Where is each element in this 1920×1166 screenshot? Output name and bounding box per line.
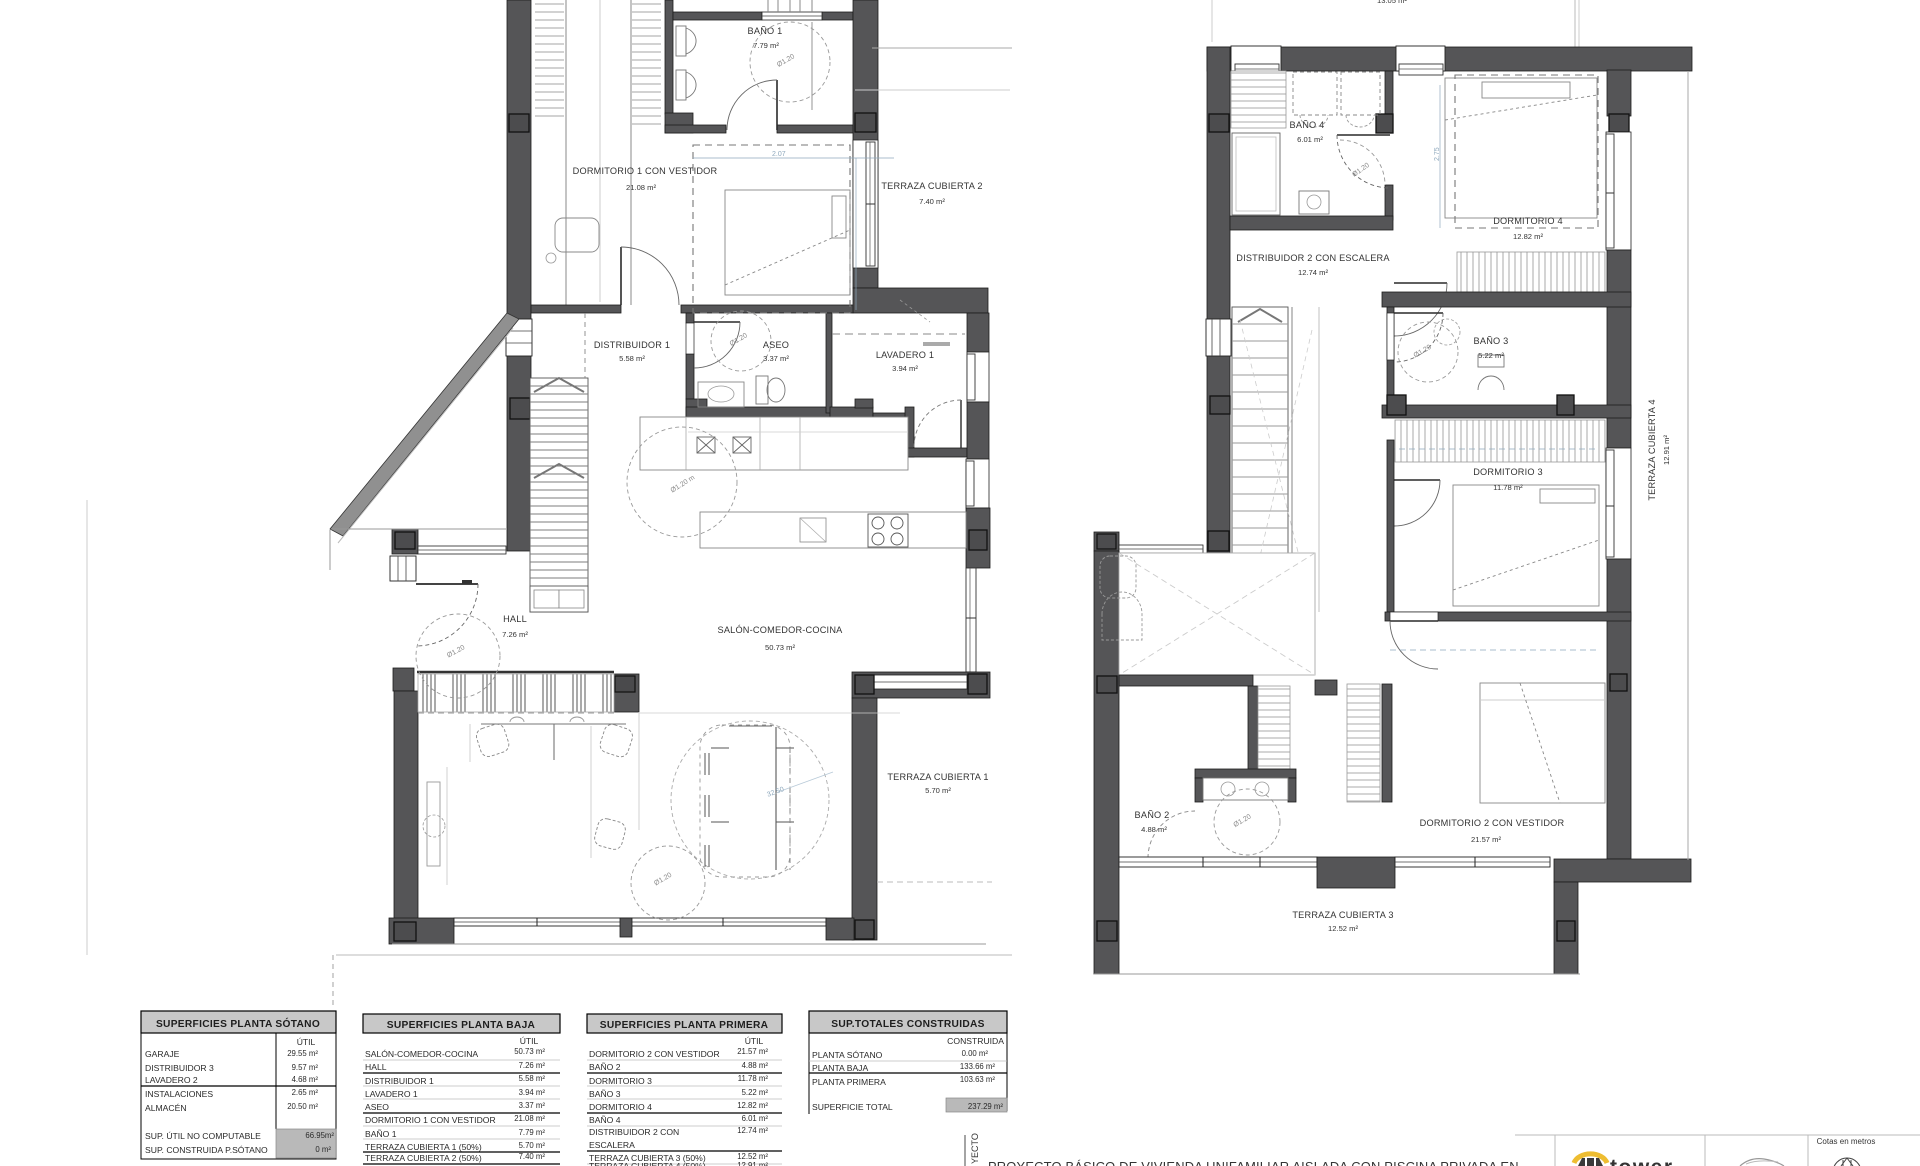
svg-text:TERRAZA CUBIERTA 3: TERRAZA CUBIERTA 3 <box>1292 910 1393 920</box>
svg-text:SALÓN-COMEDOR-COCINA: SALÓN-COMEDOR-COCINA <box>365 1049 478 1059</box>
svg-text:ASEO: ASEO <box>763 340 789 350</box>
svg-text:6.01 m²: 6.01 m² <box>742 1114 769 1123</box>
svg-text:12.74 m²: 12.74 m² <box>1298 268 1328 277</box>
svg-text:21.57 m²: 21.57 m² <box>737 1047 768 1056</box>
svg-text:133.66 m²: 133.66 m² <box>960 1062 996 1071</box>
svg-text:4.68 m²: 4.68 m² <box>292 1075 319 1084</box>
svg-text:ALMACÉN: ALMACÉN <box>145 1103 187 1113</box>
svg-text:66.95m²: 66.95m² <box>305 1131 334 1140</box>
svg-text:9.57 m²: 9.57 m² <box>292 1063 319 1072</box>
svg-text:SUPERFICIES PLANTA BAJA: SUPERFICIES PLANTA BAJA <box>387 1020 536 1031</box>
svg-text:DISTRIBUIDOR 2 CON: DISTRIBUIDOR 2 CON <box>589 1127 679 1137</box>
svg-text:12.82 m²: 12.82 m² <box>1513 232 1543 241</box>
svg-text:29.55 m²: 29.55 m² <box>287 1049 318 1058</box>
svg-text:SUPERFICIE TOTAL: SUPERFICIE TOTAL <box>812 1102 893 1112</box>
svg-text:ASEO: ASEO <box>365 1102 389 1112</box>
svg-text:7.40 m²: 7.40 m² <box>519 1152 546 1161</box>
svg-text:11.78 m²: 11.78 m² <box>738 1074 769 1083</box>
svg-text:5.58 m²: 5.58 m² <box>519 1074 546 1083</box>
svg-text:DORMITORIO 1 CON VESTIDOR: DORMITORIO 1 CON VESTIDOR <box>365 1115 496 1125</box>
svg-text:6.01 m²: 6.01 m² <box>1297 135 1323 144</box>
svg-text:20.50 m²: 20.50 m² <box>287 1102 318 1111</box>
svg-text:50.73 m²: 50.73 m² <box>765 643 795 652</box>
svg-text:PLANTA BAJA: PLANTA BAJA <box>812 1063 868 1073</box>
svg-text:3.94 m²: 3.94 m² <box>519 1088 546 1097</box>
svg-text:7.26 m²: 7.26 m² <box>519 1061 546 1070</box>
svg-text:SALÓN-COMEDOR-COCINA: SALÓN-COMEDOR-COCINA <box>718 625 844 635</box>
svg-text:21.08 m²: 21.08 m² <box>626 183 656 192</box>
svg-text:CONSTRUIDA: CONSTRUIDA <box>947 1036 1004 1046</box>
svg-text:5.70 m²: 5.70 m² <box>519 1141 546 1150</box>
svg-text:DISTRIBUIDOR 1: DISTRIBUIDOR 1 <box>365 1076 434 1086</box>
svg-text:0.00 m²: 0.00 m² <box>962 1049 989 1058</box>
svg-text:BAÑO 1: BAÑO 1 <box>365 1129 397 1139</box>
svg-text:12.52 m²: 12.52 m² <box>1328 924 1358 933</box>
svg-text:DORMITORIO 1 CON VESTIDOR: DORMITORIO 1 CON VESTIDOR <box>573 166 718 176</box>
svg-text:4.88 m²: 4.88 m² <box>742 1061 769 1070</box>
svg-text:DORMITORIO 2 CON VESTIDOR: DORMITORIO 2 CON VESTIDOR <box>589 1049 720 1059</box>
svg-text:SUPERFICIES PLANTA SÓTANO: SUPERFICIES PLANTA SÓTANO <box>156 1017 320 1030</box>
svg-text:YECTO: YECTO <box>970 1133 980 1164</box>
svg-text:ÚTIL: ÚTIL <box>297 1037 316 1047</box>
svg-text:LAVADERO 1: LAVADERO 1 <box>365 1089 418 1099</box>
svg-text:GARAJE: GARAJE <box>145 1049 180 1059</box>
svg-text:Cotas en metros: Cotas en metros <box>1817 1137 1876 1146</box>
svg-text:12.52 m²: 12.52 m² <box>737 1152 768 1161</box>
svg-text:tower: tower <box>1610 1156 1674 1166</box>
svg-text:237.29 m²: 237.29 m² <box>968 1102 1004 1111</box>
svg-text:BAÑO 2: BAÑO 2 <box>589 1062 621 1072</box>
svg-text:TERRAZA CUBIERTA 1: TERRAZA CUBIERTA 1 <box>887 772 988 782</box>
svg-text:2.75: 2.75 <box>1434 147 1441 161</box>
svg-text:21.08 m²: 21.08 m² <box>514 1114 545 1123</box>
svg-text:DORMITORIO 4: DORMITORIO 4 <box>589 1102 652 1112</box>
svg-text:PLANTA SÓTANO: PLANTA SÓTANO <box>812 1050 883 1060</box>
svg-text:5.70 m²: 5.70 m² <box>925 786 951 795</box>
svg-text:12.82 m²: 12.82 m² <box>737 1101 768 1110</box>
svg-text:HALL: HALL <box>365 1062 387 1072</box>
svg-text:2.07: 2.07 <box>772 151 786 158</box>
svg-text:LAVADERO 1: LAVADERO 1 <box>876 350 934 360</box>
svg-text:BAÑO 3: BAÑO 3 <box>1474 336 1509 346</box>
svg-text:SUP. ÚTIL NO COMPUTABLE: SUP. ÚTIL NO COMPUTABLE <box>145 1131 261 1141</box>
svg-text:PROYECTO BÁSICO DE VIVIENDA UN: PROYECTO BÁSICO DE VIVIENDA UNIFAMILIAR … <box>988 1159 1519 1166</box>
svg-text:DORMITORIO 2 CON VESTIDOR: DORMITORIO 2 CON VESTIDOR <box>1420 818 1565 828</box>
svg-text:DORMITORIO 3: DORMITORIO 3 <box>1473 467 1543 477</box>
svg-text:TERRAZA CUBIERTA 2: TERRAZA CUBIERTA 2 <box>881 181 982 191</box>
svg-text:21.57 m²: 21.57 m² <box>1471 835 1501 844</box>
svg-text:50.73 m²: 50.73 m² <box>514 1047 545 1056</box>
svg-text:PLANTA PRIMERA: PLANTA PRIMERA <box>812 1077 886 1087</box>
svg-text:DISTRIBUIDOR 2 CON ESCALERA: DISTRIBUIDOR 2 CON ESCALERA <box>1236 253 1390 263</box>
svg-text:DISTRIBUIDOR 1: DISTRIBUIDOR 1 <box>594 340 670 350</box>
svg-text:7.79 m²: 7.79 m² <box>753 41 779 50</box>
svg-text:3.37 m²: 3.37 m² <box>519 1101 546 1110</box>
svg-text:HALL: HALL <box>503 614 527 624</box>
svg-text:11.78 m²: 11.78 m² <box>1493 483 1523 492</box>
svg-text:2.65 m²: 2.65 m² <box>292 1088 319 1097</box>
svg-text:5.22 m²: 5.22 m² <box>742 1088 769 1097</box>
svg-text:ÚTIL: ÚTIL <box>520 1036 539 1046</box>
svg-text:0 m²: 0 m² <box>315 1145 331 1154</box>
svg-text:TERRAZA CUBIERTA 4: TERRAZA CUBIERTA 4 <box>1647 399 1657 500</box>
svg-text:ESCALERA: ESCALERA <box>589 1140 635 1150</box>
svg-text:DORMITORIO 4: DORMITORIO 4 <box>1493 216 1563 226</box>
svg-text:103.63 m²: 103.63 m² <box>960 1075 996 1084</box>
svg-text:12.91 m²: 12.91 m² <box>1662 435 1671 465</box>
svg-text:3.37 m²: 3.37 m² <box>763 354 789 363</box>
svg-text:BAÑO 4: BAÑO 4 <box>589 1115 621 1125</box>
svg-text:ÚTIL: ÚTIL <box>745 1036 764 1046</box>
svg-text:SUP.TOTALES CONSTRUIDAS: SUP.TOTALES CONSTRUIDAS <box>831 1019 985 1030</box>
svg-text:TERRAZA CUBIERTA 4 (50%): TERRAZA CUBIERTA 4 (50%) <box>589 1161 706 1166</box>
svg-text:DORMITORIO 3: DORMITORIO 3 <box>589 1076 652 1086</box>
svg-text:LAVADERO 2: LAVADERO 2 <box>145 1075 198 1085</box>
svg-text:12.74 m²: 12.74 m² <box>737 1126 768 1135</box>
svg-text:INSTALACIONES: INSTALACIONES <box>145 1089 213 1099</box>
svg-text:4.88 m²: 4.88 m² <box>1141 825 1167 834</box>
svg-text:TERRAZA CUBIERTA 1 (50%): TERRAZA CUBIERTA 1 (50%) <box>365 1142 482 1152</box>
svg-text:13.05 m²: 13.05 m² <box>1377 0 1407 5</box>
svg-text:TERRAZA CUBIERTA 2 (50%): TERRAZA CUBIERTA 2 (50%) <box>365 1153 482 1163</box>
svg-text:7.26 m²: 7.26 m² <box>502 630 528 639</box>
svg-text:BAÑO 1: BAÑO 1 <box>748 26 783 36</box>
svg-text:5.22 m²: 5.22 m² <box>1478 351 1504 360</box>
svg-text:3.94 m²: 3.94 m² <box>892 364 918 373</box>
svg-text:7.40 m²: 7.40 m² <box>919 197 945 206</box>
svg-text:DISTRIBUIDOR 3: DISTRIBUIDOR 3 <box>145 1063 214 1073</box>
svg-text:BAÑO 3: BAÑO 3 <box>589 1089 621 1099</box>
svg-text:SUP. CONSTRUIDA P.SÓTANO: SUP. CONSTRUIDA P.SÓTANO <box>145 1145 268 1155</box>
svg-text:12.91 m²: 12.91 m² <box>737 1161 768 1166</box>
svg-text:BAÑO 4: BAÑO 4 <box>1290 120 1325 130</box>
svg-text:BAÑO 2: BAÑO 2 <box>1135 810 1170 820</box>
svg-text:7.79 m²: 7.79 m² <box>519 1128 546 1137</box>
svg-text:SUPERFICIES PLANTA PRIMERA: SUPERFICIES PLANTA PRIMERA <box>600 1020 769 1031</box>
svg-text:5.58 m²: 5.58 m² <box>619 354 645 363</box>
